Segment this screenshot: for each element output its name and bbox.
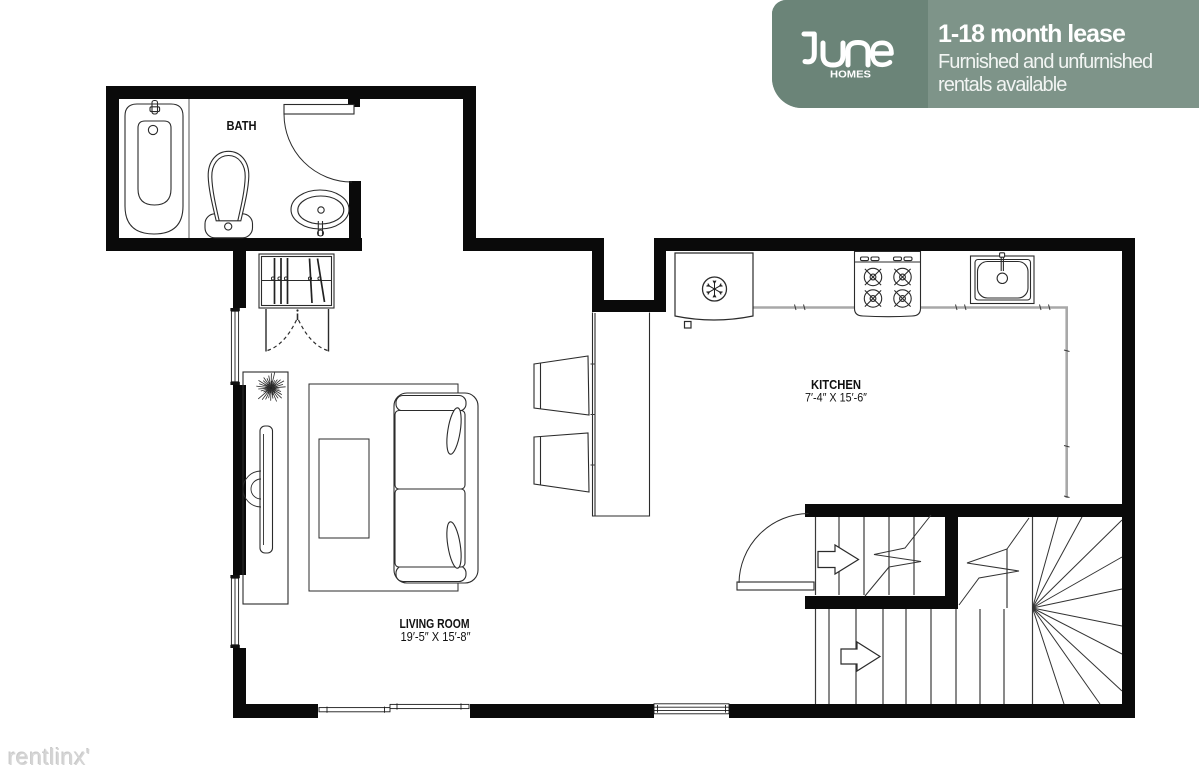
svg-text:19′-5″ X 15′-8″: 19′-5″ X 15′-8″	[401, 630, 472, 644]
svg-text:7′-4″ X 15′-6″: 7′-4″ X 15′-6″	[805, 391, 868, 405]
svg-text:LIVING ROOM: LIVING ROOM	[400, 616, 470, 631]
svg-text:HOMES: HOMES	[830, 69, 871, 81]
svg-text:BATH: BATH	[227, 118, 257, 133]
